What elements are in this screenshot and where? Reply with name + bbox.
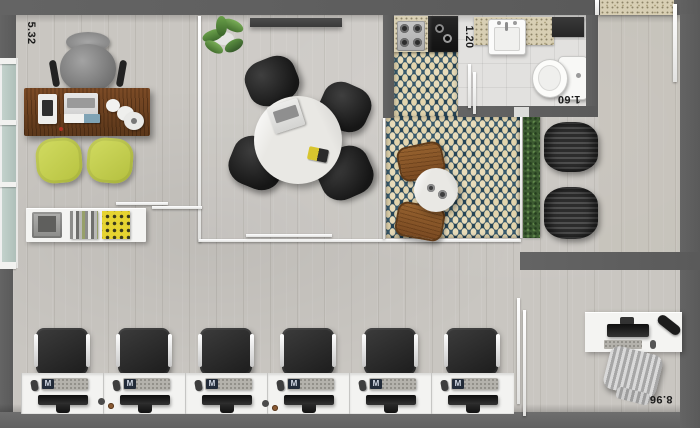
window-mullion xyxy=(0,58,16,64)
hedge-glass xyxy=(520,116,522,238)
entry-mat xyxy=(600,0,674,15)
kitchen-cabinet xyxy=(428,16,458,52)
monitor-stand xyxy=(302,404,316,413)
chair-armrest xyxy=(332,334,336,367)
chair-armrest xyxy=(250,334,254,367)
cooktop xyxy=(397,21,425,51)
keyboard-badge: M xyxy=(206,379,218,389)
toilet-seat xyxy=(538,65,561,91)
window-mullion xyxy=(0,120,16,125)
kitchen-wall xyxy=(383,15,394,118)
keyboard-badge: M xyxy=(370,379,382,389)
mouse xyxy=(650,340,656,349)
waiting-area-wall xyxy=(520,252,700,270)
left-window xyxy=(0,58,18,268)
office-chair xyxy=(282,328,334,375)
plant xyxy=(202,18,246,60)
monitor xyxy=(120,395,170,405)
monitor-stand xyxy=(138,404,152,413)
laptop-keyboard xyxy=(67,98,95,108)
pouf xyxy=(544,122,598,172)
burner xyxy=(400,24,409,33)
chair-armrest xyxy=(34,334,38,367)
window-mullion xyxy=(0,182,16,187)
phone-icon xyxy=(276,379,285,391)
dimension-label-kitchen: 1.20 xyxy=(461,21,475,53)
bathroom-right-wall xyxy=(586,15,598,116)
dimension-label-length: 8.96 xyxy=(642,391,680,405)
workstation: M xyxy=(349,328,431,414)
monitor-stand xyxy=(384,404,398,413)
hedge xyxy=(523,116,540,238)
guest-chair xyxy=(34,136,83,184)
bottom-wall xyxy=(0,412,700,428)
keyboard: M xyxy=(205,378,252,390)
cafe-table xyxy=(414,168,458,212)
flush-button xyxy=(576,73,581,78)
monitor-stand xyxy=(466,404,480,413)
office-chair xyxy=(200,328,252,375)
monitor xyxy=(607,324,649,337)
monitor xyxy=(366,395,416,405)
plant-leaf xyxy=(216,16,227,36)
chair-armrest xyxy=(116,334,120,367)
keyboard: M xyxy=(123,378,170,390)
bathroom-doorway xyxy=(514,107,529,117)
window-mullion xyxy=(0,262,16,269)
monitor-stand xyxy=(220,404,234,413)
dimension-label-executive-office: 5.32 xyxy=(23,17,37,49)
guest-chair xyxy=(85,136,134,184)
decor-box xyxy=(102,211,130,239)
bathroom-sink xyxy=(488,19,526,55)
kitchen-glass xyxy=(383,118,385,239)
phone-icon xyxy=(194,379,203,391)
floor-plan: M M M M M xyxy=(0,0,700,428)
workstation-desk: M xyxy=(267,373,350,414)
chair-armrest xyxy=(444,334,448,367)
workstation: M xyxy=(431,328,513,414)
faucet-spout xyxy=(505,22,508,31)
left-wall-top xyxy=(0,15,16,60)
office-glass-partition xyxy=(523,310,526,416)
workstation: M xyxy=(103,328,185,414)
red-accent xyxy=(59,127,63,131)
books xyxy=(70,211,98,239)
meeting-room-glass-front xyxy=(199,239,521,242)
printer-tray xyxy=(38,216,56,232)
faucet-handle xyxy=(497,21,501,25)
workstation: M xyxy=(185,328,267,414)
workstation-desk: M xyxy=(349,373,432,414)
monitor xyxy=(448,395,498,405)
cup xyxy=(427,184,435,192)
keyboard-badge: M xyxy=(288,379,300,389)
monitor-stand xyxy=(56,404,70,413)
keyboard: M xyxy=(451,378,498,390)
pouf xyxy=(544,187,598,239)
dimension-label-bathroom: 1.60 xyxy=(551,91,587,105)
top-wall-right xyxy=(674,0,700,15)
burner xyxy=(413,38,422,47)
office-chair xyxy=(36,328,88,375)
keyboard: M xyxy=(41,378,88,390)
office-glass-partition xyxy=(517,298,520,404)
bottle xyxy=(443,34,452,43)
keyboard: M xyxy=(287,378,334,390)
saucer-item xyxy=(131,118,137,124)
bathroom-door xyxy=(468,64,471,108)
chair-armrest xyxy=(414,334,418,367)
workstation-desk: M xyxy=(103,373,186,414)
phone-icon xyxy=(112,379,121,391)
magazine xyxy=(64,114,100,123)
bathroom-door xyxy=(473,72,476,114)
mug xyxy=(108,403,114,409)
workstation-desk: M xyxy=(431,373,514,414)
chair-armrest xyxy=(86,334,90,367)
keyboard-badge: M xyxy=(452,379,464,389)
right-wall xyxy=(680,14,700,428)
workstation-desk: M xyxy=(21,373,104,414)
chair-armrest xyxy=(168,334,172,367)
desk-item xyxy=(262,400,269,407)
keyboard-badge: M xyxy=(124,379,136,389)
workstation: M xyxy=(21,328,103,414)
desk-item xyxy=(98,398,105,405)
wall-shelf xyxy=(250,18,342,27)
entry-door-frame xyxy=(595,0,599,15)
chair-armrest xyxy=(496,334,500,367)
monitor xyxy=(38,395,88,405)
phone-icon xyxy=(358,379,367,391)
phone-icon xyxy=(30,379,39,391)
workstation-desk: M xyxy=(185,373,268,414)
keyboard: M xyxy=(369,378,416,390)
faucet-handle xyxy=(513,21,517,25)
desk-phone-screen xyxy=(42,100,53,116)
burner xyxy=(400,38,409,47)
executive-chair xyxy=(60,44,116,92)
entry-door-leaf xyxy=(673,4,677,82)
chair-armrest xyxy=(362,334,366,367)
monitor xyxy=(202,395,252,405)
office-chair xyxy=(446,328,498,375)
office-glass-door xyxy=(152,206,202,209)
bottle xyxy=(435,24,444,33)
entry-corridor-floor xyxy=(598,15,680,252)
chair-armrest xyxy=(198,334,202,367)
mug xyxy=(272,405,278,411)
office-chair xyxy=(118,328,170,375)
monitor xyxy=(284,395,334,405)
chair-armrest xyxy=(280,334,284,367)
top-wall xyxy=(0,0,600,15)
office-glass-door xyxy=(116,202,168,205)
phone-icon xyxy=(440,379,449,391)
burner xyxy=(413,24,422,33)
bathroom-shelf xyxy=(552,17,584,37)
office-chair xyxy=(364,328,416,375)
keyboard-badge: M xyxy=(42,379,54,389)
cup xyxy=(438,190,447,199)
workstation: M xyxy=(267,328,349,414)
kitchen-checker-floor xyxy=(394,52,458,118)
sliding-glass-door xyxy=(246,234,332,237)
